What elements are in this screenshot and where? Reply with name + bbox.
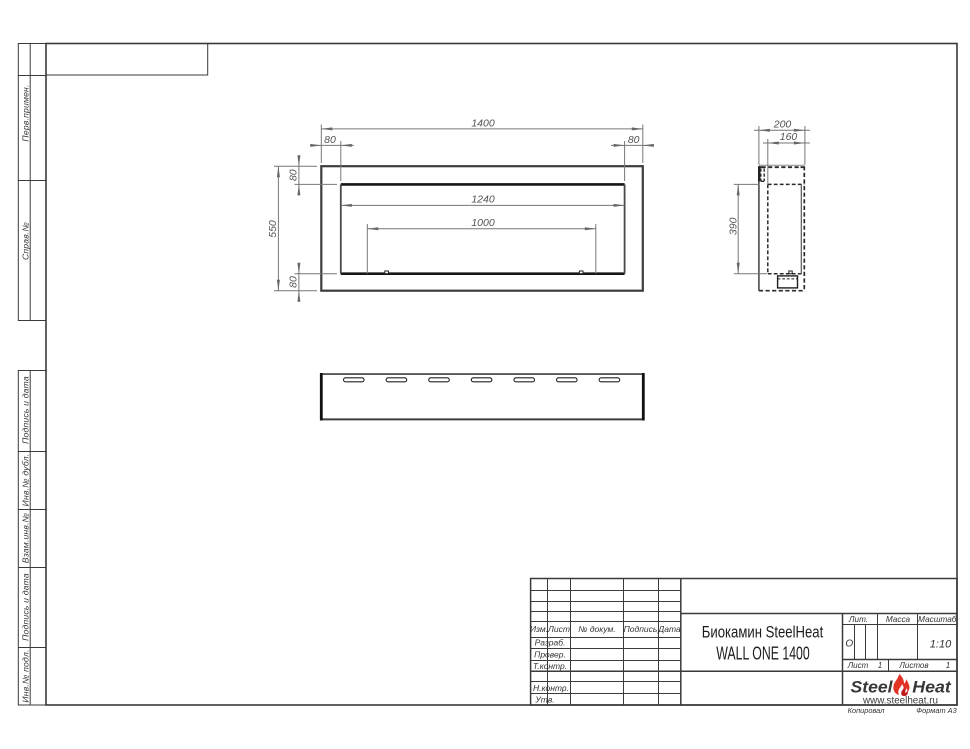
svg-text:1: 1: [878, 661, 882, 670]
svg-text:Масса: Масса: [886, 615, 911, 624]
svg-text:Масштаб: Масштаб: [918, 615, 957, 624]
svg-text:Подпись: Подпись: [624, 624, 658, 634]
svg-text:Копировал: Копировал: [848, 706, 886, 715]
svg-text:№ докум.: № докум.: [578, 624, 615, 634]
svg-text:1240: 1240: [471, 194, 495, 206]
svg-text:Провер.: Провер.: [534, 650, 566, 660]
svg-text:80: 80: [628, 134, 640, 146]
svg-text:Лист: Лист: [547, 624, 570, 634]
svg-text:Формат А3: Формат А3: [916, 706, 957, 715]
svg-text:Подпись и дата: Подпись и дата: [21, 376, 31, 444]
svg-text:80: 80: [324, 134, 336, 146]
svg-text:Разраб.: Разраб.: [535, 638, 566, 648]
svg-text:Т.контр.: Т.контр.: [533, 661, 567, 671]
svg-text:WALL ONE 1400: WALL ONE 1400: [716, 644, 810, 664]
svg-text:О: О: [845, 639, 853, 650]
svg-text:www.steelheat.ru: www.steelheat.ru: [862, 695, 938, 706]
svg-text:80: 80: [287, 276, 299, 288]
svg-text:80: 80: [287, 169, 299, 181]
svg-text:Инв.№ подл.: Инв.№ подл.: [21, 649, 31, 702]
svg-text:Steel: Steel: [851, 679, 893, 697]
svg-text:Дата: Дата: [657, 624, 681, 634]
svg-text:Лит.: Лит.: [848, 615, 868, 624]
svg-text:Листов: Листов: [898, 661, 928, 670]
svg-text:Взам.инв.№: Взам.инв.№: [21, 513, 31, 563]
svg-text:Н.контр.: Н.контр.: [533, 683, 569, 693]
svg-text:1:10: 1:10: [930, 639, 952, 651]
svg-text:Перв.примен.: Перв.примен.: [21, 84, 31, 141]
svg-text:Изм.: Изм.: [530, 624, 548, 634]
svg-text:160: 160: [780, 131, 798, 143]
svg-text:Утв.: Утв.: [534, 695, 554, 705]
svg-text:1: 1: [946, 661, 950, 670]
svg-text:550: 550: [267, 220, 279, 238]
svg-text:Лист: Лист: [847, 661, 869, 670]
svg-text:200: 200: [773, 119, 792, 131]
svg-text:Heat: Heat: [912, 679, 952, 697]
svg-text:Подпись и дата: Подпись и дата: [21, 573, 31, 641]
svg-text:1400: 1400: [471, 118, 495, 130]
svg-text:Справ.№: Справ.№: [21, 222, 31, 260]
svg-text:1000: 1000: [471, 217, 495, 229]
svg-text:390: 390: [727, 217, 739, 235]
svg-text:Биокамин SteelHeat: Биокамин SteelHeat: [702, 622, 824, 641]
svg-text:Инв.№ дубл.: Инв.№ дубл.: [21, 454, 31, 507]
